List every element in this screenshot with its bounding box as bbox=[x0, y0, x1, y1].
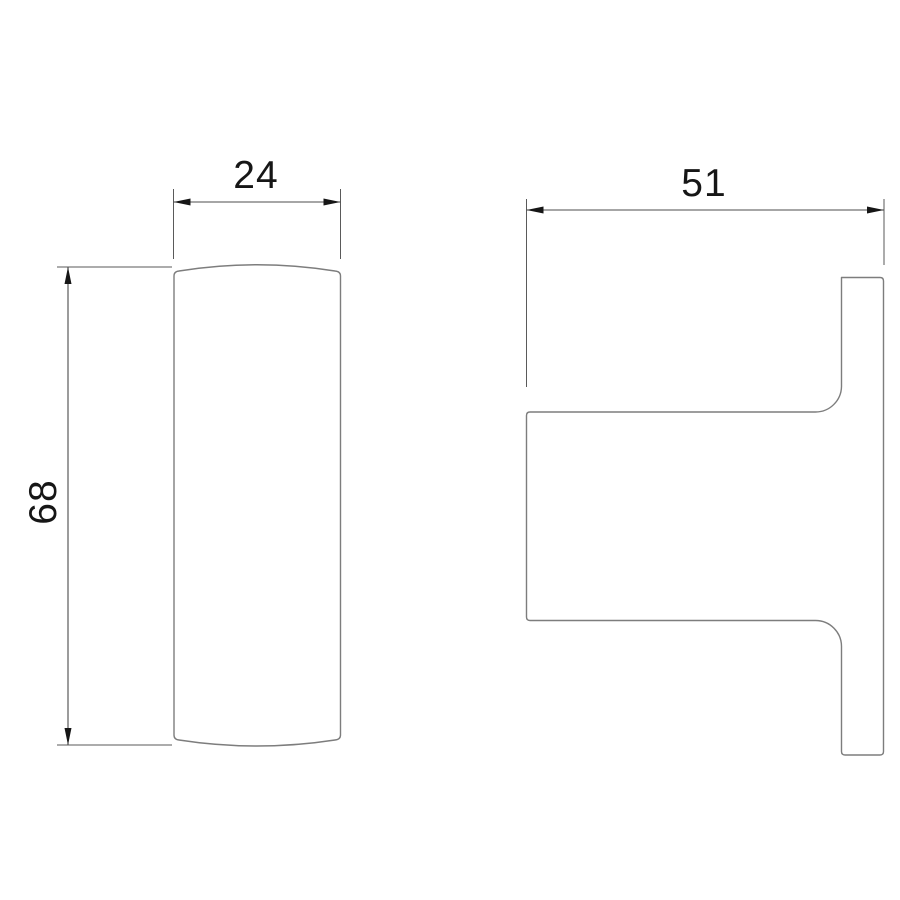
front-view bbox=[174, 265, 341, 746]
technical-drawing-canvas: 24 51 68 bbox=[0, 0, 900, 900]
width-dimension-label: 24 bbox=[233, 154, 278, 197]
dimension-depth: 51 bbox=[527, 162, 885, 387]
side-view-outline bbox=[527, 278, 884, 756]
height-arrowhead-bottom-icon bbox=[65, 728, 72, 745]
depth-arrowhead-left-icon bbox=[527, 207, 544, 214]
technical-drawing-page: 24 51 68 bbox=[0, 0, 900, 900]
dimension-height: 68 bbox=[22, 267, 172, 745]
front-view-outline bbox=[174, 265, 341, 746]
width-arrowhead-left-icon bbox=[174, 199, 191, 206]
depth-dimension-label: 51 bbox=[681, 162, 726, 205]
height-arrowhead-top-icon bbox=[65, 267, 72, 284]
width-arrowhead-right-icon bbox=[324, 199, 341, 206]
dimension-width: 24 bbox=[174, 154, 341, 259]
depth-arrowhead-right-icon bbox=[867, 207, 884, 214]
height-dimension-label: 68 bbox=[22, 479, 65, 524]
side-view bbox=[527, 278, 884, 756]
